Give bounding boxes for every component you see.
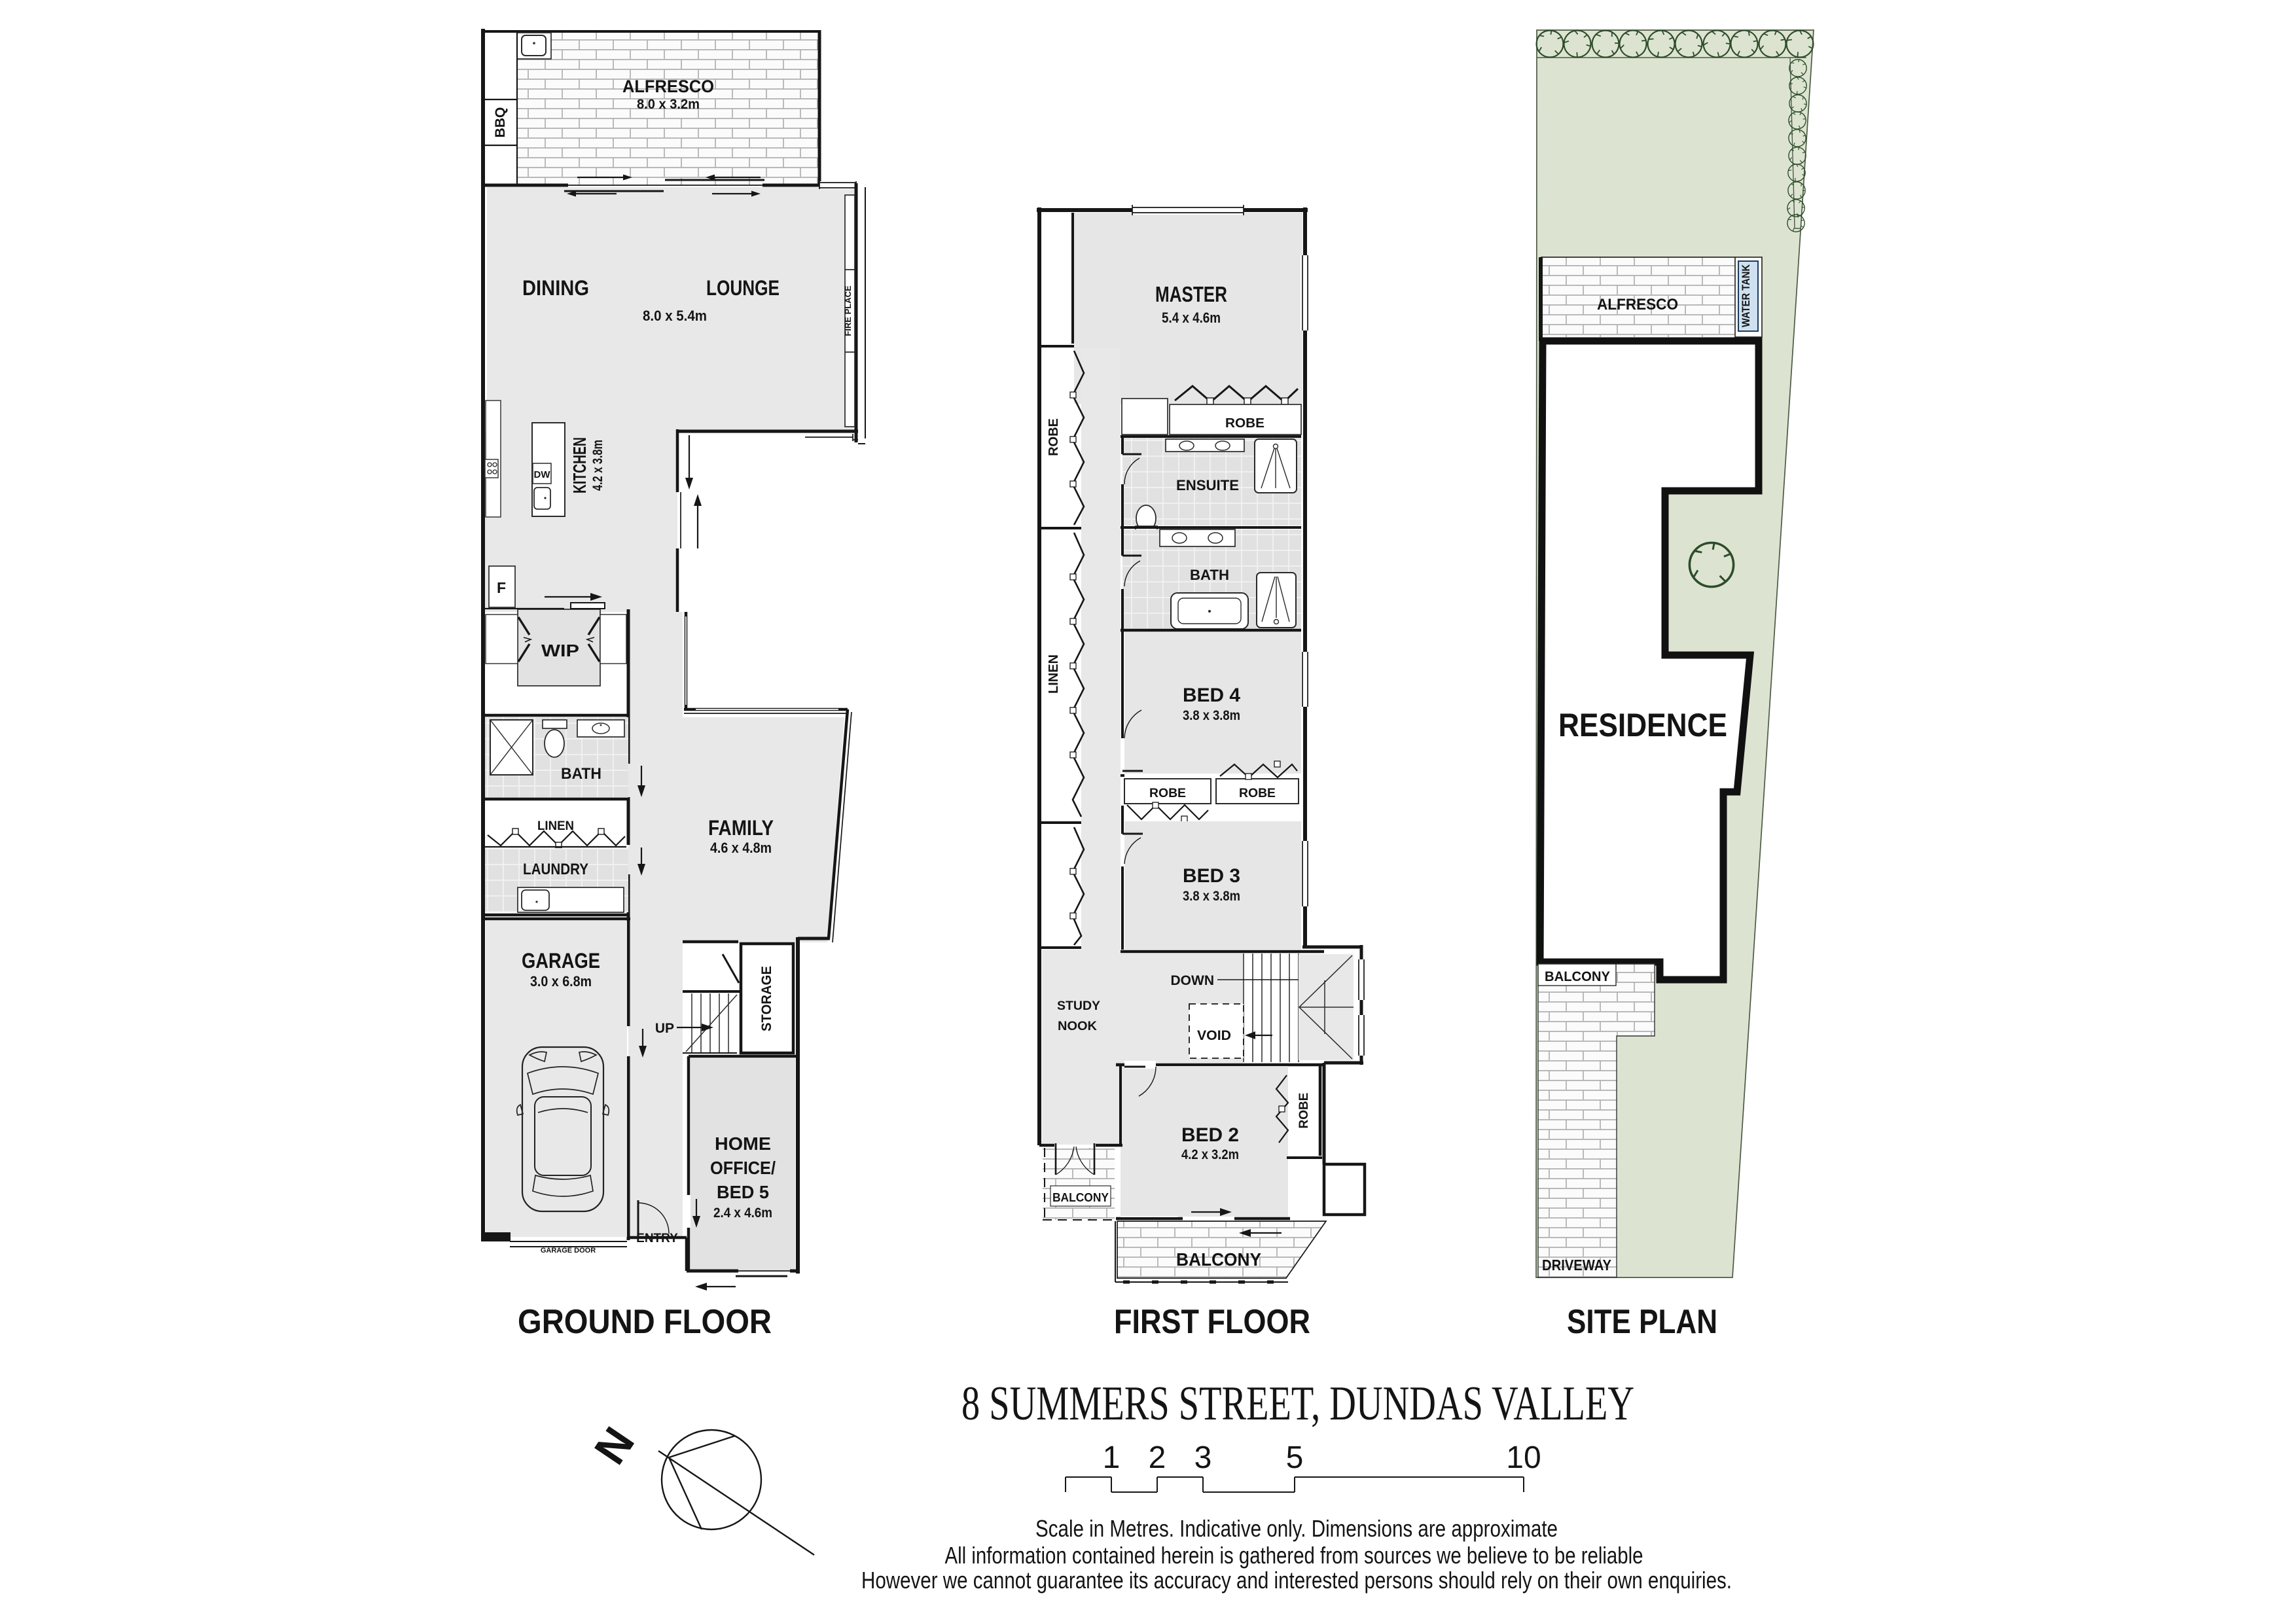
svg-text:3.8 x 3.8m: 3.8 x 3.8m <box>1183 708 1240 723</box>
svg-text:ALFRESCO: ALFRESCO <box>622 77 714 96</box>
svg-text:UP: UP <box>655 1021 674 1036</box>
svg-text:FIRE PLACE: FIRE PLACE <box>843 285 853 336</box>
svg-text:4.2 x 3.8m: 4.2 x 3.8m <box>590 440 605 491</box>
svg-text:4.6 x 4.8m: 4.6 x 4.8m <box>710 840 772 856</box>
svg-text:4.2 x 3.2m: 4.2 x 3.2m <box>1181 1147 1239 1162</box>
svg-text:All information contained here: All information contained herein is gath… <box>945 1542 1643 1569</box>
svg-text:2: 2 <box>1149 1440 1166 1475</box>
svg-text:DINING: DINING <box>522 276 589 300</box>
svg-text:SITE PLAN: SITE PLAN <box>1567 1303 1717 1341</box>
svg-text:STUDY: STUDY <box>1057 999 1100 1013</box>
svg-text:2.4 x 4.6m: 2.4 x 4.6m <box>713 1205 772 1221</box>
svg-text:FAMILY: FAMILY <box>708 816 774 840</box>
svg-text:FIRST FLOOR: FIRST FLOOR <box>1114 1303 1310 1341</box>
svg-text:F: F <box>497 579 506 596</box>
svg-text:BALCONY: BALCONY <box>1052 1191 1109 1204</box>
svg-text:BED 2: BED 2 <box>1181 1124 1239 1146</box>
svg-text:GROUND FLOOR: GROUND FLOOR <box>518 1303 772 1341</box>
svg-text:10: 10 <box>1506 1440 1541 1475</box>
svg-text:STORAGE: STORAGE <box>759 966 774 1031</box>
svg-text:LAUNDRY: LAUNDRY <box>523 861 588 878</box>
svg-text:BED 4: BED 4 <box>1183 685 1240 706</box>
svg-text:8.0 x 3.2m: 8.0 x 3.2m <box>637 97 700 112</box>
svg-text:BED 3: BED 3 <box>1183 865 1240 887</box>
svg-text:LOUNGE: LOUNGE <box>706 276 780 300</box>
svg-text:MASTER: MASTER <box>1155 282 1227 306</box>
svg-text:ROBE: ROBE <box>1149 787 1186 800</box>
svg-text:8 SUMMERS STREET, DUNDAS VALLE: 8 SUMMERS STREET, DUNDAS VALLEY <box>961 1377 1634 1431</box>
svg-text:NOOK: NOOK <box>1058 1020 1097 1033</box>
svg-text:N: N <box>585 1419 644 1473</box>
svg-text:5.4 x 4.6m: 5.4 x 4.6m <box>1162 310 1221 326</box>
svg-text:DW: DW <box>534 469 551 480</box>
svg-text:BBQ: BBQ <box>493 107 508 138</box>
svg-text:However we cannot guarantee it: However we cannot guarantee its accuracy… <box>861 1567 1732 1594</box>
svg-text:3: 3 <box>1194 1440 1212 1475</box>
svg-text:HOME: HOME <box>715 1133 771 1154</box>
svg-text:3.8 x 3.8m: 3.8 x 3.8m <box>1183 889 1240 904</box>
svg-text:1: 1 <box>1103 1440 1121 1475</box>
svg-text:DRIVEWAY: DRIVEWAY <box>1542 1257 1611 1274</box>
svg-text:WATER TANK: WATER TANK <box>1740 264 1752 327</box>
svg-text:OFFICE/: OFFICE/ <box>710 1158 776 1178</box>
svg-text:WIP: WIP <box>541 641 579 660</box>
svg-text:BALCONY: BALCONY <box>1545 969 1610 984</box>
svg-text:BED 5: BED 5 <box>717 1182 769 1202</box>
svg-text:BATH: BATH <box>1190 567 1229 583</box>
svg-text:ALFRESCO: ALFRESCO <box>1597 296 1678 313</box>
svg-text:ROBE: ROBE <box>1225 416 1265 431</box>
svg-text:GARAGE: GARAGE <box>522 949 600 972</box>
svg-text:ENSUITE: ENSUITE <box>1176 477 1239 493</box>
svg-text:8.0 x 5.4m: 8.0 x 5.4m <box>643 308 707 324</box>
svg-text:BALCONY: BALCONY <box>1176 1249 1261 1270</box>
svg-text:5: 5 <box>1286 1440 1304 1475</box>
svg-text:LINEN: LINEN <box>1047 654 1061 694</box>
svg-text:ROBE: ROBE <box>1047 418 1061 456</box>
svg-text:GARAGE DOOR: GARAGE DOOR <box>541 1247 596 1255</box>
svg-text:Scale in Metres. Indicative on: Scale in Metres. Indicative only. Dimens… <box>1035 1515 1558 1542</box>
svg-text:DOWN: DOWN <box>1171 973 1215 988</box>
svg-text:BATH: BATH <box>561 765 601 783</box>
svg-text:VOID: VOID <box>1197 1028 1231 1043</box>
svg-text:3.0 x 6.8m: 3.0 x 6.8m <box>530 973 592 990</box>
svg-text:RESIDENCE: RESIDENCE <box>1558 707 1727 743</box>
svg-text:ROBE: ROBE <box>1297 1093 1311 1129</box>
svg-text:LINEN: LINEN <box>537 819 574 833</box>
svg-text:ROBE: ROBE <box>1239 787 1276 800</box>
svg-text:KITCHEN: KITCHEN <box>569 437 590 493</box>
